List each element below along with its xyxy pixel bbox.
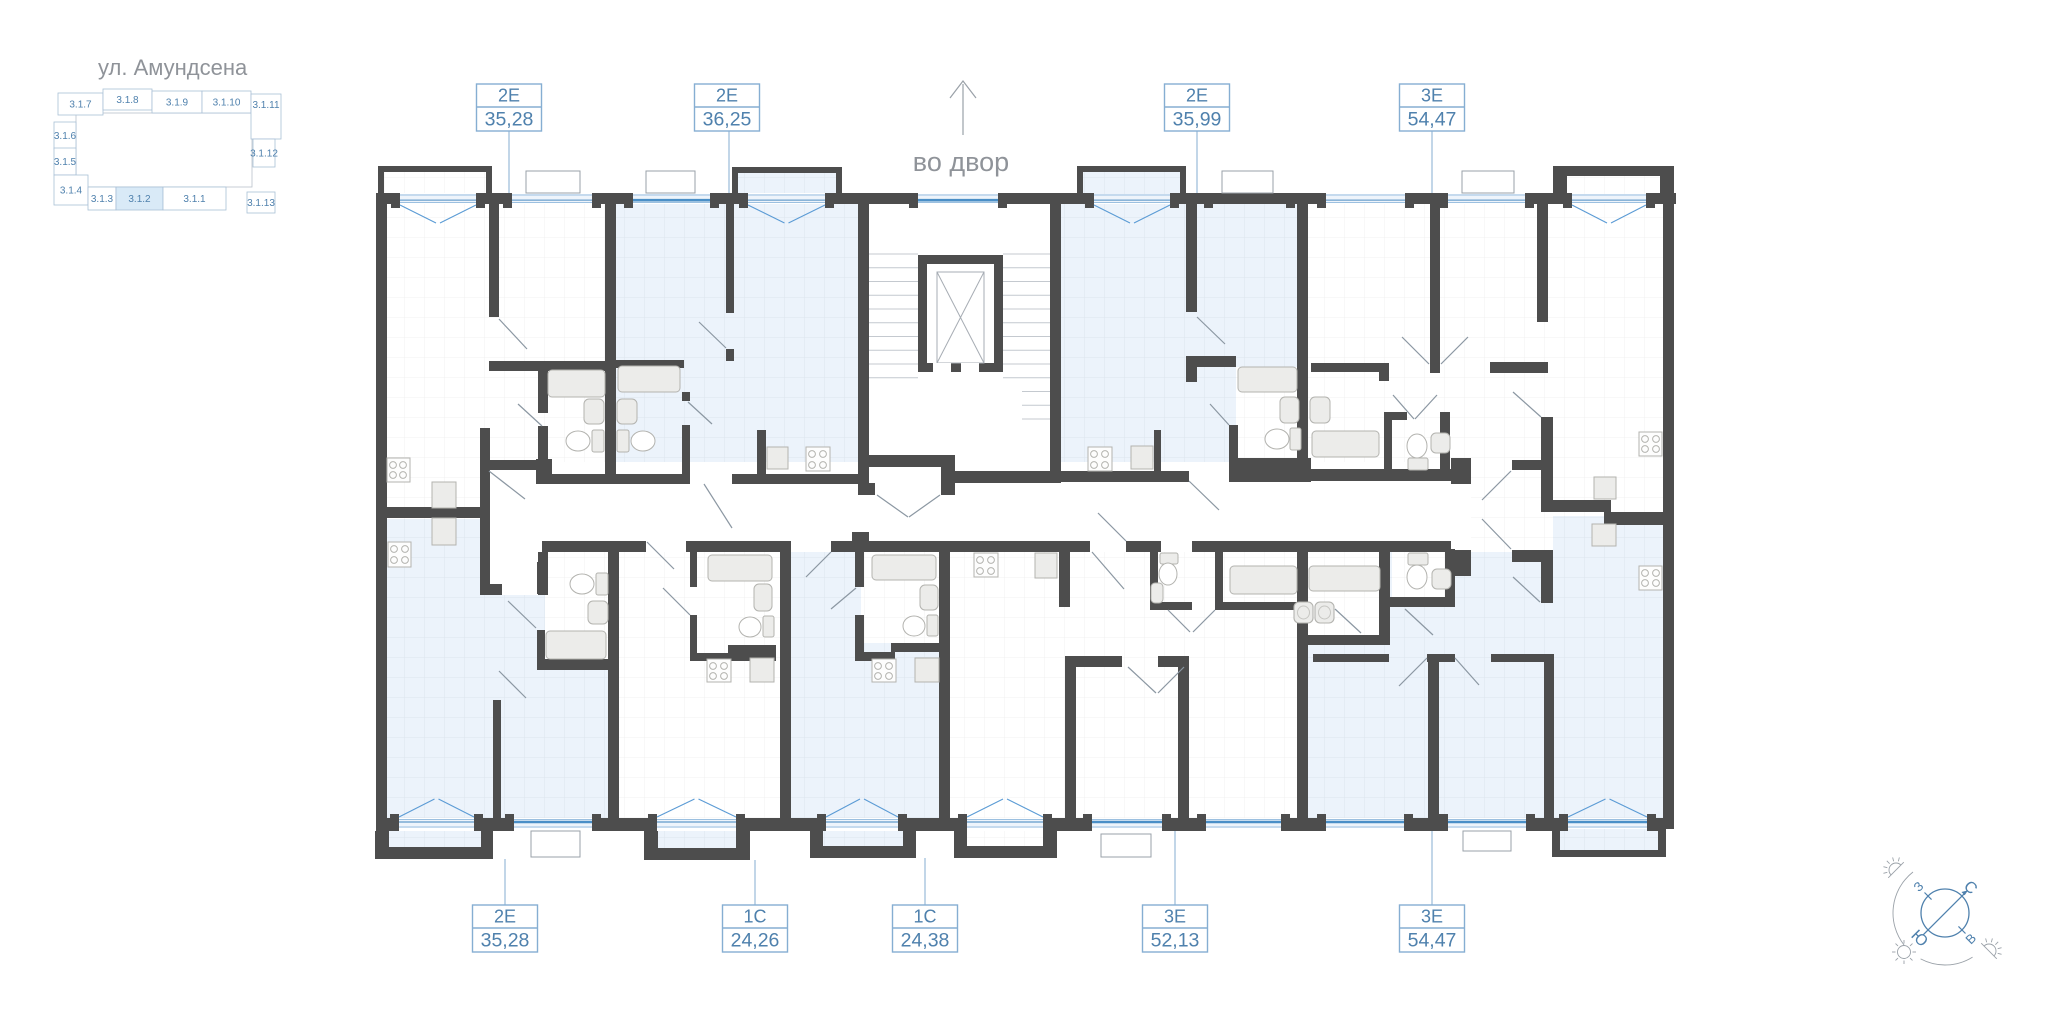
svg-text:3.1.7: 3.1.7 bbox=[69, 100, 92, 111]
svg-text:52,13: 52,13 bbox=[1151, 930, 1200, 952]
svg-text:2Е: 2Е bbox=[498, 86, 520, 106]
svg-text:во двор: во двор bbox=[913, 147, 1009, 177]
svg-text:3.1.4: 3.1.4 bbox=[60, 186, 83, 197]
svg-text:2Е: 2Е bbox=[494, 907, 516, 927]
svg-text:2Е: 2Е bbox=[1186, 86, 1208, 106]
svg-text:3.1.5: 3.1.5 bbox=[54, 157, 77, 168]
svg-text:24,26: 24,26 bbox=[731, 930, 780, 952]
svg-text:24,38: 24,38 bbox=[901, 930, 950, 952]
svg-text:3.1.8: 3.1.8 bbox=[116, 95, 139, 106]
svg-text:1С: 1С bbox=[743, 907, 766, 927]
svg-text:54,47: 54,47 bbox=[1408, 109, 1457, 131]
svg-text:3Е: 3Е bbox=[1421, 86, 1443, 106]
svg-text:3Е: 3Е bbox=[1421, 907, 1443, 927]
svg-text:3.1.9: 3.1.9 bbox=[166, 98, 189, 109]
svg-text:3.1.3: 3.1.3 bbox=[91, 194, 114, 205]
svg-text:3.1.11: 3.1.11 bbox=[252, 100, 279, 111]
svg-text:36,25: 36,25 bbox=[703, 109, 752, 131]
svg-text:54,47: 54,47 bbox=[1408, 930, 1457, 952]
svg-text:3.1.1: 3.1.1 bbox=[183, 194, 206, 205]
svg-text:35,99: 35,99 bbox=[1173, 109, 1222, 131]
svg-text:3.1.13: 3.1.13 bbox=[247, 198, 275, 209]
svg-text:3Е: 3Е bbox=[1164, 907, 1186, 927]
svg-text:3.1.12: 3.1.12 bbox=[250, 149, 278, 160]
svg-text:3.1.6: 3.1.6 bbox=[54, 131, 77, 142]
svg-text:ул. Амундсена: ул. Амундсена bbox=[98, 55, 248, 80]
svg-text:35,28: 35,28 bbox=[485, 109, 534, 131]
svg-text:35,28: 35,28 bbox=[481, 930, 530, 952]
svg-text:1С: 1С bbox=[913, 907, 936, 927]
svg-text:2Е: 2Е bbox=[716, 86, 738, 106]
svg-text:3.1.2: 3.1.2 bbox=[128, 194, 151, 205]
svg-text:3.1.10: 3.1.10 bbox=[213, 98, 241, 109]
